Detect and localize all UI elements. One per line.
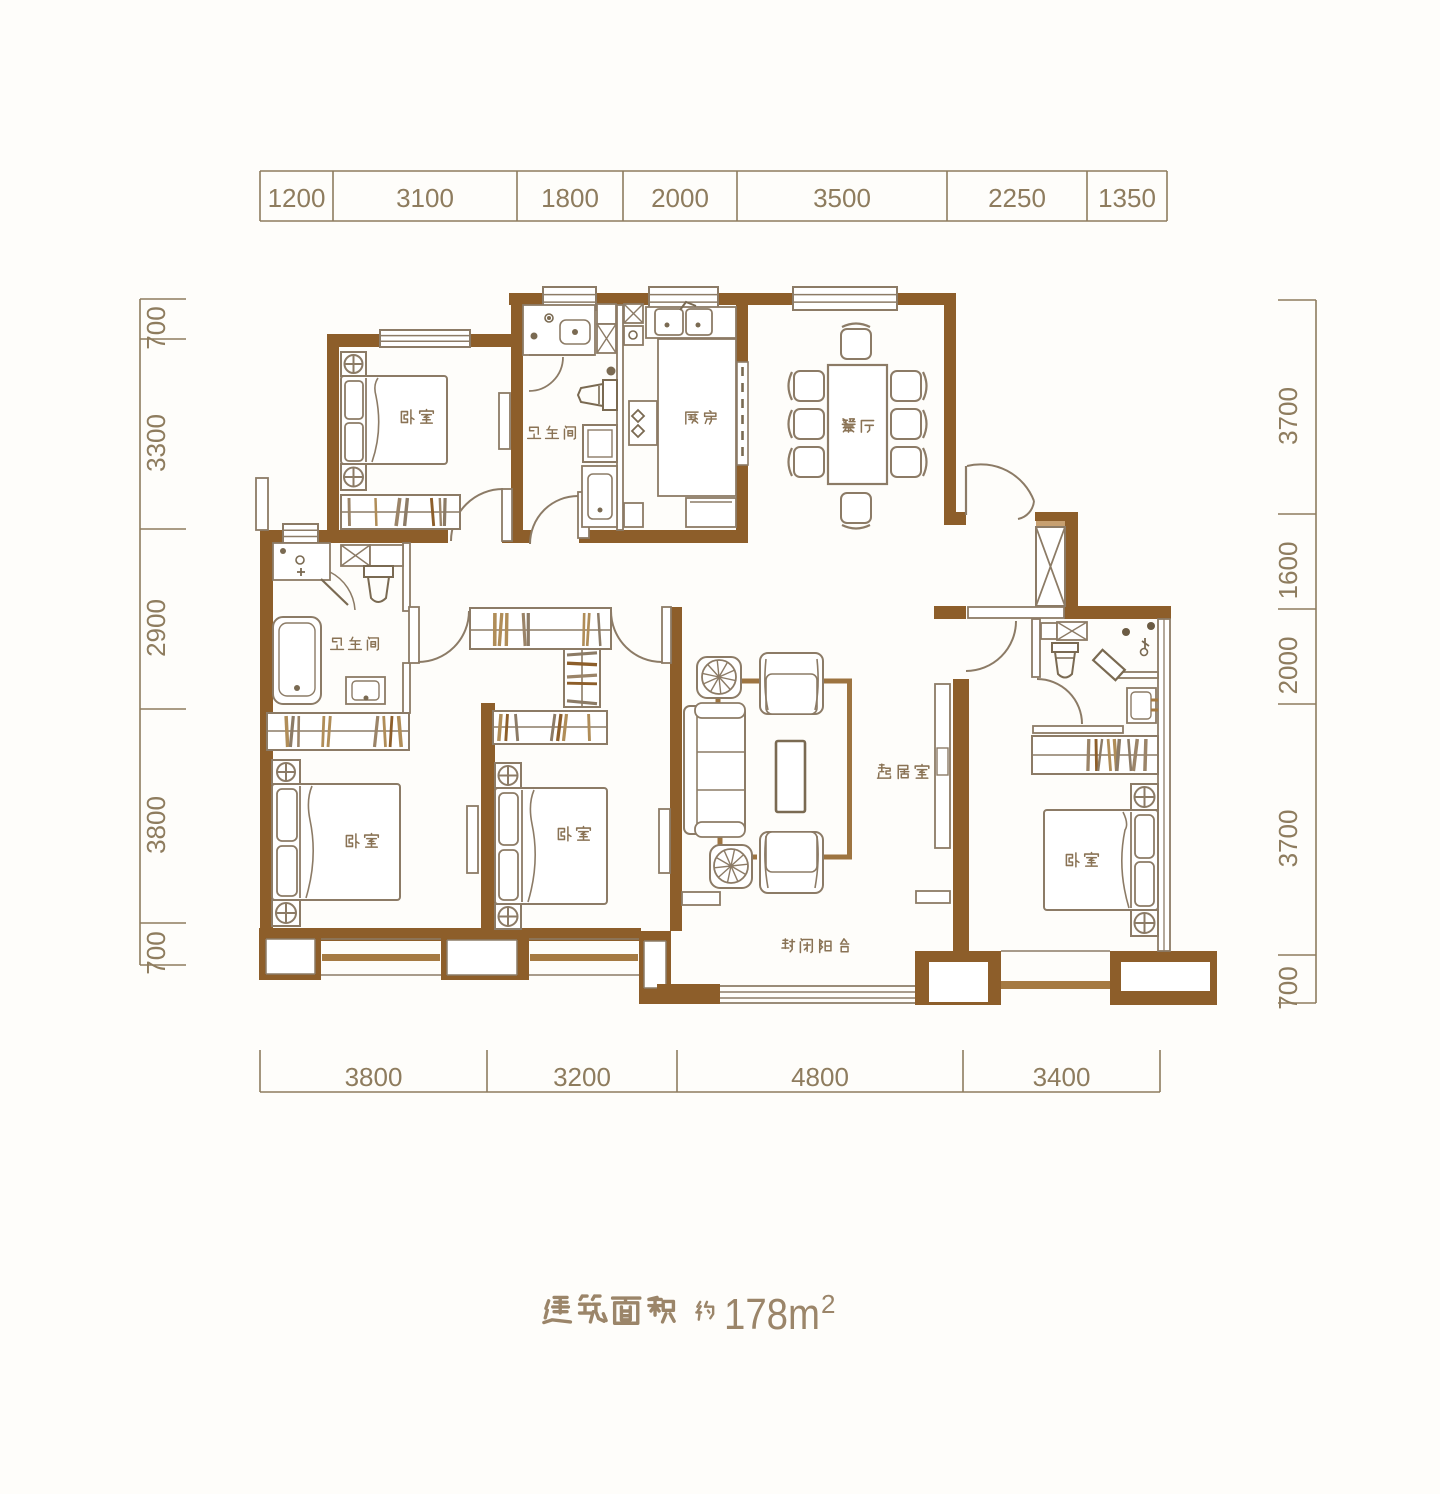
svg-text:2: 2: [821, 1289, 835, 1319]
svg-text:3100: 3100: [396, 183, 454, 213]
svg-text:3300: 3300: [141, 414, 171, 472]
svg-text:700: 700: [141, 931, 171, 974]
svg-text:1600: 1600: [1273, 542, 1303, 600]
svg-text:3700: 3700: [1273, 810, 1303, 868]
svg-text:1350: 1350: [1098, 183, 1156, 213]
svg-text:178m: 178m: [724, 1290, 820, 1339]
svg-text:3700: 3700: [1273, 387, 1303, 445]
svg-text:1800: 1800: [541, 183, 599, 213]
svg-text:700: 700: [141, 306, 171, 349]
svg-text:3500: 3500: [813, 183, 871, 213]
svg-text:4800: 4800: [791, 1062, 849, 1092]
svg-text:700: 700: [1273, 966, 1303, 1009]
svg-text:2900: 2900: [141, 599, 171, 657]
svg-text:2000: 2000: [1273, 637, 1303, 695]
svg-text:3800: 3800: [345, 1062, 403, 1092]
svg-text:3200: 3200: [553, 1062, 611, 1092]
svg-text:2000: 2000: [651, 183, 709, 213]
svg-text:3800: 3800: [141, 796, 171, 854]
svg-text:2250: 2250: [988, 183, 1046, 213]
svg-text:1200: 1200: [268, 183, 326, 213]
svg-text:3400: 3400: [1033, 1062, 1091, 1092]
